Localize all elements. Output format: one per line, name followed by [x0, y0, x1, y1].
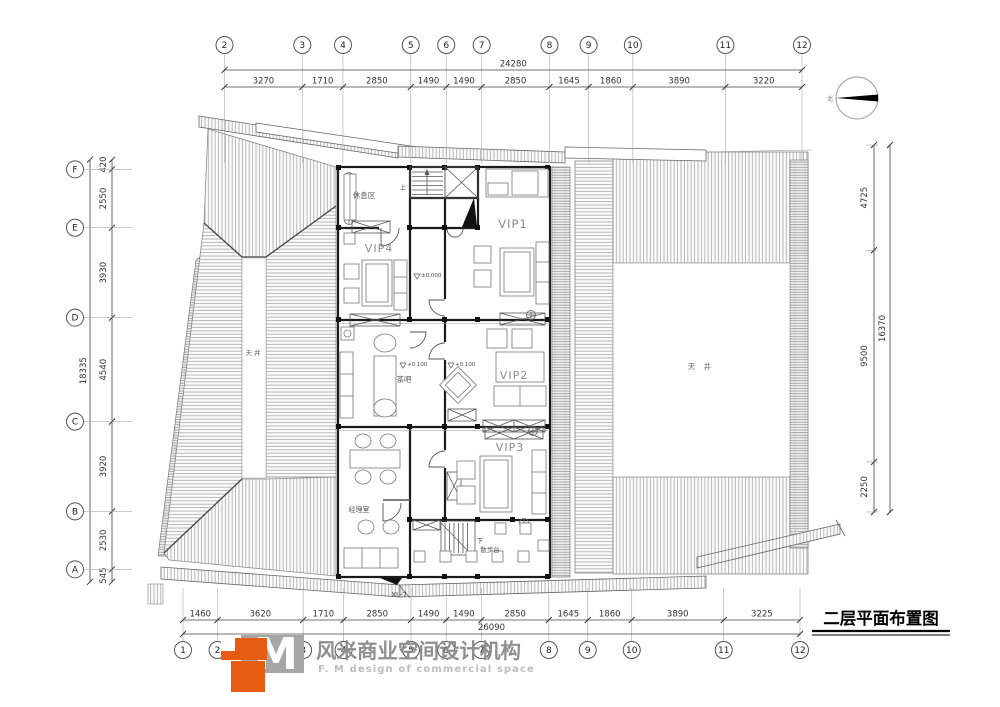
north-needle-icon — [836, 95, 878, 102]
courtyard-left — [242, 258, 266, 478]
dim-label: 24280 — [500, 60, 527, 70]
dim-label: 1860 — [600, 77, 622, 87]
dim-label: 2250 — [860, 476, 870, 498]
dim-label: D — [72, 314, 79, 324]
right-wing-roof — [552, 152, 808, 577]
dim-label: 5 — [408, 41, 414, 51]
dim-label: 1645 — [558, 77, 580, 87]
logo: M 风米商业空间设计机构 F. M design of commercial s… — [221, 629, 535, 692]
dim-label: 12 — [794, 646, 805, 656]
room-label-vip2: VIP2 — [500, 369, 528, 382]
stair-down-label: 下 — [477, 537, 484, 545]
dim-label: 2 — [222, 41, 228, 51]
right-wing-top-band — [613, 152, 808, 263]
dim-label: B — [72, 507, 78, 517]
dimension-grid-left: 4202550393045403920253054518335FEDCBA — [67, 156, 133, 584]
dim-label: 3930 — [99, 262, 109, 284]
room-label-vip4: VIP4 — [365, 242, 393, 255]
dim-label: 3620 — [250, 610, 272, 620]
dim-label: 2850 — [366, 610, 388, 620]
dim-label: 18335 — [79, 357, 89, 384]
dim-label: 1645 — [557, 610, 579, 620]
dim-label: 3270 — [253, 77, 275, 87]
dim-label: 1490 — [453, 610, 475, 620]
dim-label: 9 — [586, 41, 592, 51]
room-label-vip3: VIP3 — [496, 441, 524, 454]
right-wing-right-eave — [790, 160, 808, 548]
dim-label: 3920 — [99, 456, 109, 478]
dim-label: 4 — [340, 41, 346, 51]
dim-label: 1 — [180, 646, 186, 656]
dim-label: 1710 — [313, 610, 335, 620]
dim-label: F — [72, 165, 77, 175]
dimension-grid-top: 3270171028501490149028501645186038903220… — [216, 37, 811, 164]
title-block: 二层平面布置图 — [812, 608, 950, 635]
dim-label: 12 — [796, 41, 807, 51]
logo-orange-notch — [221, 638, 235, 651]
dim-label: 2550 — [99, 188, 109, 210]
north-arrow: 北 — [827, 77, 878, 119]
dim-label: C — [72, 418, 78, 428]
room-label-tea: 茶吧 — [397, 374, 412, 384]
level-mark-corridor: ±0.000 — [421, 273, 442, 279]
dim-label: 1460 — [189, 610, 211, 620]
dim-label: 3220 — [753, 77, 775, 87]
dim-label: 2 — [215, 646, 221, 656]
dim-label: 10 — [626, 646, 638, 656]
dim-label: 3225 — [751, 610, 773, 620]
dim-label: 3 — [299, 41, 305, 51]
dim-label: 4725 — [860, 187, 870, 209]
stair-up-label: 上 — [400, 184, 406, 192]
dim-label: 11 — [720, 41, 731, 51]
dim-label: A — [72, 565, 79, 575]
dim-label: E — [72, 224, 78, 234]
dim-label: 420 — [99, 156, 109, 172]
dim-label: 10 — [627, 41, 639, 51]
page-title: 二层平面布置图 — [823, 608, 939, 628]
floor-plan-drawing: 休息区 VIP1 VIP4 VIP2 VIP3 茶吧 经理室 散步台 天 井 天… — [0, 0, 1000, 707]
dim-label: 1490 — [453, 77, 475, 87]
building-right-eave — [552, 167, 570, 577]
beam-label: XL-7 — [391, 591, 407, 599]
level-mark-tea: +0.100 — [407, 362, 428, 368]
logo-en-text: F. M design of commercial space — [318, 664, 535, 675]
dim-label: 8 — [547, 41, 553, 51]
level-mark-vip2: +0.100 — [455, 362, 476, 368]
dim-label: 2850 — [504, 610, 526, 620]
dimension-grid-right: 47259500225016370 — [860, 142, 893, 515]
dim-label: 2850 — [505, 77, 527, 87]
dim-label: 1860 — [599, 610, 621, 620]
dim-label: 9500 — [860, 345, 870, 367]
drawing-sheet: 休息区 VIP1 VIP4 VIP2 VIP3 茶吧 经理室 散步台 天 井 天… — [0, 0, 1000, 707]
dim-label: 8 — [546, 646, 552, 656]
dim-label: 11 — [718, 646, 729, 656]
right-wing-left-band — [575, 161, 613, 573]
room-label-vip1: VIP1 — [498, 217, 528, 231]
dim-label: 2530 — [99, 530, 109, 552]
dim-label: 1710 — [312, 77, 334, 87]
dim-label: 4540 — [99, 359, 109, 381]
dim-label: 26090 — [478, 623, 505, 633]
room-label-terrace: 散步台 — [480, 545, 500, 554]
dim-label: 16370 — [878, 315, 888, 342]
logo-cn-text: 风米商业空间设计机构 — [316, 639, 521, 663]
dim-label: 1490 — [418, 610, 440, 620]
dim-label: 545 — [99, 567, 109, 583]
logo-orange-bottom — [231, 661, 265, 692]
dim-label: 9 — [585, 646, 591, 656]
dim-label: 6 — [443, 41, 449, 51]
dim-label: 2850 — [366, 77, 388, 87]
courtyard-right-label: 天 井 — [688, 361, 714, 371]
north-label: 北 — [827, 95, 833, 103]
dim-label: 3890 — [667, 610, 689, 620]
dim-label: 1490 — [418, 77, 440, 87]
dim-label: 3890 — [668, 77, 690, 87]
room-label-manager: 经理室 — [349, 505, 370, 514]
room-label-rest: 休息区 — [353, 190, 376, 200]
courtyard-left-label: 天 井 — [245, 348, 261, 357]
dim-label: 7 — [479, 41, 485, 51]
